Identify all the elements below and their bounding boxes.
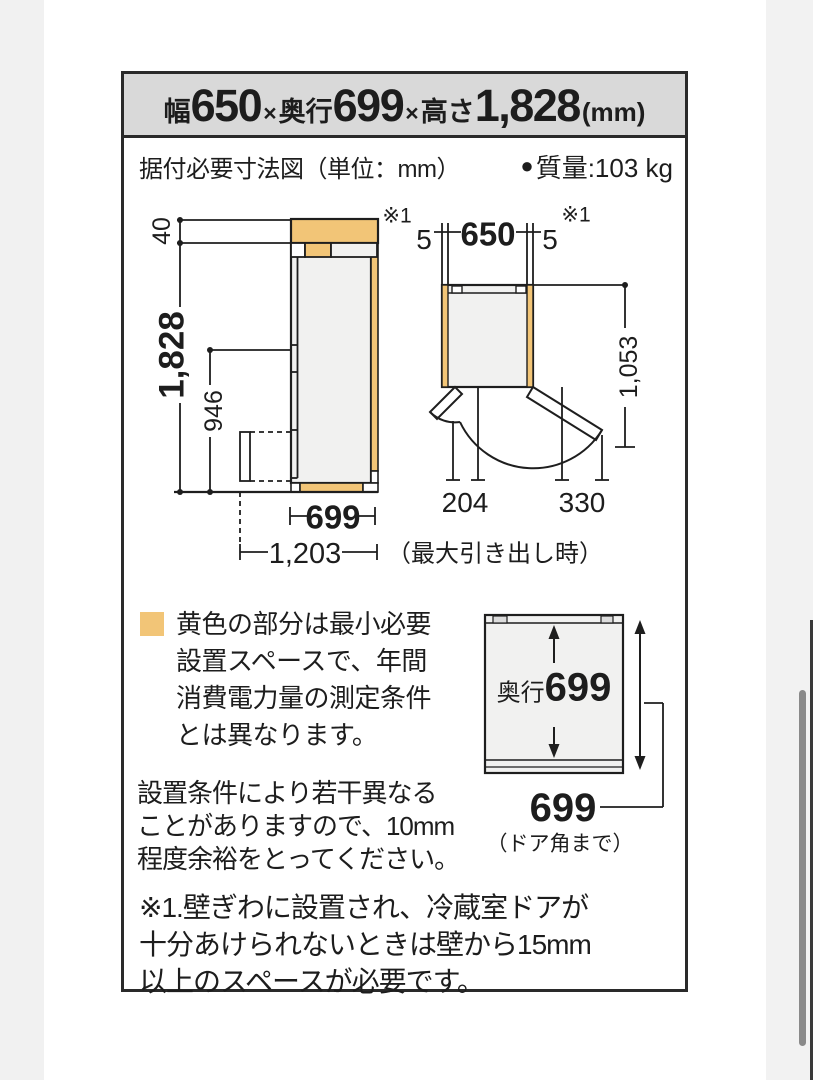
- door-corner-depth-value: 699: [530, 786, 597, 830]
- info-row: 据付必要寸法図（単位：mm） ●質量:103 kg: [139, 142, 673, 190]
- top-view-diagram: [430, 223, 635, 480]
- wall-footnote-left: ※1: [382, 204, 411, 227]
- legend-line: 消費電力量の測定条件: [176, 680, 431, 717]
- note-line: 設置条件により若干異なる: [137, 777, 459, 810]
- max-pullout-note: （最大引き出し時）: [387, 540, 603, 567]
- height-value: 1,828: [475, 83, 580, 128]
- inner-depth-value: 699: [545, 666, 612, 710]
- legend-paragraph: 黄色の部分は最小必要 設置スペースで、年間 消費電力量の測定条件 とは異なります…: [176, 606, 431, 754]
- height-dim-value: 1,828: [152, 311, 191, 399]
- footnote-paragraph: ※1.壁ぎわに設置され、冷蔵室ドアが 十分あけられないときは壁から15mm 以上…: [139, 889, 591, 1000]
- arrow-down-icon: [635, 756, 646, 770]
- unit-label: (mm): [582, 99, 646, 125]
- note-line: ことがありますので、10mm: [137, 810, 459, 843]
- wall-footnote-right: ※1: [561, 203, 590, 226]
- mass-spec: ●質量:103 kg: [520, 148, 673, 185]
- depth-label: 奥行: [279, 99, 333, 126]
- depth-kanji-label: 奥行: [497, 680, 545, 707]
- arrow-up-icon: [635, 620, 646, 634]
- open-depth-value: 1,053: [615, 336, 643, 399]
- left-margin-strip: [0, 0, 44, 1080]
- left-door-open: [430, 387, 462, 419]
- depth-value: 699: [333, 83, 404, 128]
- top-clearance-value: 40: [148, 217, 176, 245]
- hinge-left: [452, 286, 462, 293]
- top-rear-cover: [331, 243, 377, 257]
- dim-dot: [207, 489, 213, 495]
- hinge-left: [493, 616, 507, 623]
- legend-line: 黄色の部分は最小必要: [176, 606, 431, 643]
- drawer-front-panel: [240, 432, 250, 481]
- times-sign: ×: [405, 102, 418, 125]
- bottom-clearance-zone: [300, 483, 363, 492]
- door-corner-note: （ドア角まで）: [487, 832, 634, 855]
- front-foot: [291, 483, 300, 492]
- right-door-width-value: 330: [559, 487, 606, 518]
- width-value: 650: [191, 83, 262, 128]
- installation-diagram-title: 据付必要寸法図（単位：mm）: [139, 149, 460, 184]
- width-dim-value: 650: [460, 216, 515, 253]
- fridge-side-body: [291, 243, 371, 483]
- top-step-clearance: [305, 243, 331, 257]
- installation-note-paragraph: 設置条件により若干異なる ことがありますので、10mm 程度余裕をとってください…: [137, 777, 459, 876]
- rear-foot: [363, 483, 378, 492]
- max-pullout-value: 1,203: [269, 538, 342, 570]
- depth-dim-value: 699: [305, 499, 360, 536]
- right-door-open: [527, 387, 602, 440]
- top-front-step: [291, 243, 305, 257]
- fridge-top-body: [442, 285, 533, 387]
- gap-left-value: 5: [416, 224, 432, 255]
- scrollbar-thumb[interactable]: [799, 690, 806, 1046]
- gap-right-value: 5: [542, 224, 558, 255]
- footnote-line: ※1.壁ぎわに設置され、冷蔵室ドアが: [139, 889, 591, 926]
- footnote-line: 以上のスペースが必要です。: [139, 963, 591, 1000]
- mass-value: 質量:103 kg: [536, 148, 673, 185]
- installation-diagrams: 40 1,828 946 699 1,203 （最大引き出し時）: [125, 195, 688, 600]
- dimensions-header: 幅 650 × 奥行 699 × 高さ 1,828 (mm): [121, 71, 688, 138]
- hinge-right: [601, 616, 613, 623]
- rear-bottom-block: [371, 471, 378, 483]
- right-clearance-strip: [527, 285, 533, 387]
- note-line: 程度余裕をとってください。: [137, 843, 459, 876]
- rear-clearance-zone: [371, 243, 378, 471]
- page: 幅 650 × 奥行 699 × 高さ 1,828 (mm) 据付必要寸法図（単…: [0, 0, 813, 1080]
- legend-line: 設置スペースで、年間: [176, 643, 431, 680]
- pocket-height-value: 946: [200, 390, 228, 432]
- hinge-right: [516, 286, 526, 293]
- top-clearance-zone: [291, 219, 378, 243]
- left-clearance-strip: [442, 285, 448, 387]
- width-label: 幅: [164, 99, 191, 126]
- height-label: 高さ: [421, 99, 475, 126]
- footnote-line: 十分あけられないときは壁から15mm: [139, 926, 591, 963]
- times-sign: ×: [263, 102, 276, 125]
- depth-diagram: 奥行699 699 （ドア角まで）: [460, 600, 688, 870]
- left-door-width-value: 204: [442, 487, 489, 518]
- yellow-legend-swatch: [140, 612, 164, 636]
- bullet-icon: ●: [520, 153, 533, 179]
- legend-line: とは異なります。: [176, 717, 431, 754]
- dim-dot: [177, 489, 183, 495]
